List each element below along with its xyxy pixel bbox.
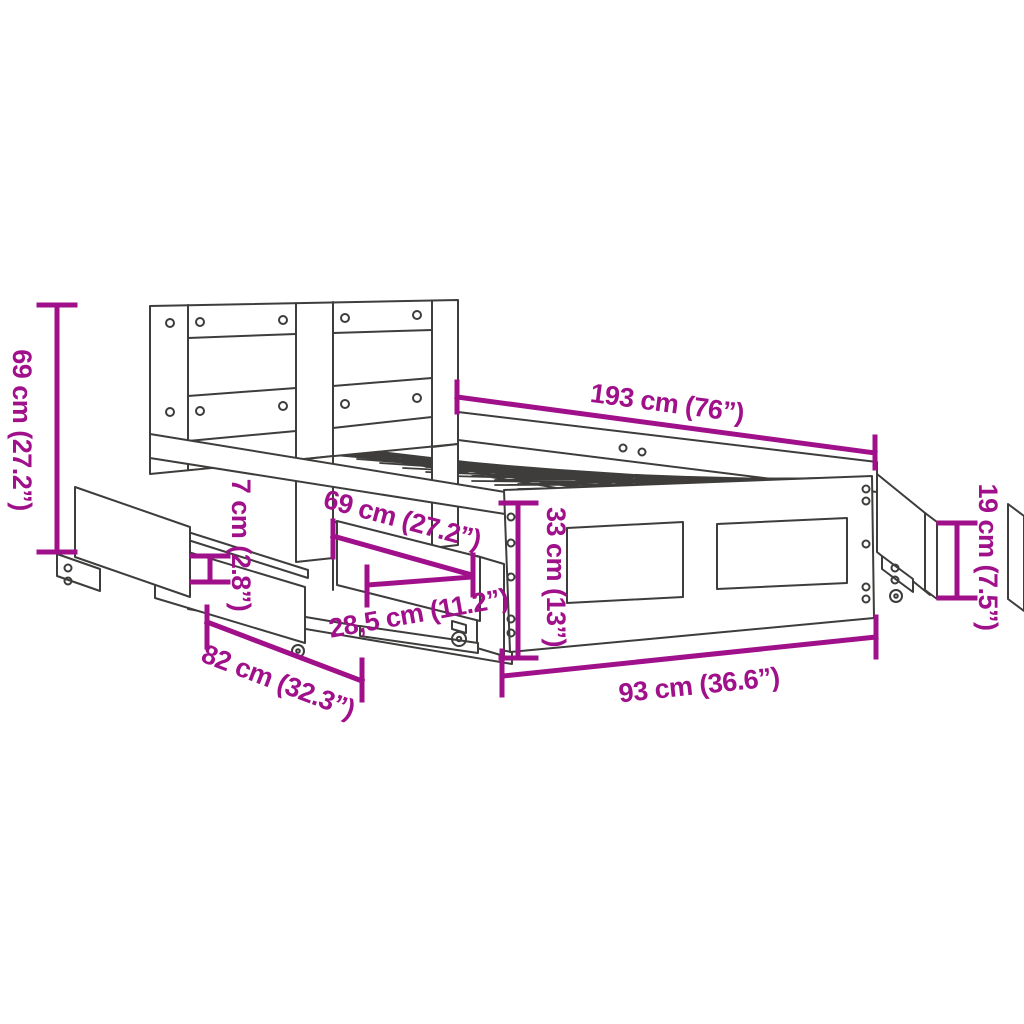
dim-label-bed-width: 93 cm (36.6”) bbox=[617, 662, 781, 709]
dim-label-slide-rail-height: 7 cm (2.8”) bbox=[226, 479, 256, 612]
product-dimension-diagram: 69 cm (27.2”) 193 cm (76”) 69 cm (27.2”)… bbox=[0, 0, 1024, 1024]
dim-label-side-rail-height: 33 cm (13”) bbox=[541, 507, 571, 647]
dim-label-foot-drawer-height: 19 cm (7.5”) bbox=[973, 483, 1003, 630]
dim-label-headboard-height: 69 cm (27.2”) bbox=[7, 349, 37, 511]
dim-label-bed-length: 193 cm (76”) bbox=[589, 378, 746, 428]
dim-arrow-headboard-height bbox=[39, 305, 75, 552]
detached-panel-edge bbox=[1008, 504, 1024, 611]
drawer-head bbox=[57, 487, 308, 657]
drawer-front-panel bbox=[925, 513, 937, 599]
bed-diagram: 69 cm (27.2”) 193 cm (76”) 69 cm (27.2”)… bbox=[0, 0, 1024, 1024]
caster-wheel bbox=[890, 590, 902, 602]
dim-arrow-foot-drawer-height bbox=[939, 523, 975, 598]
